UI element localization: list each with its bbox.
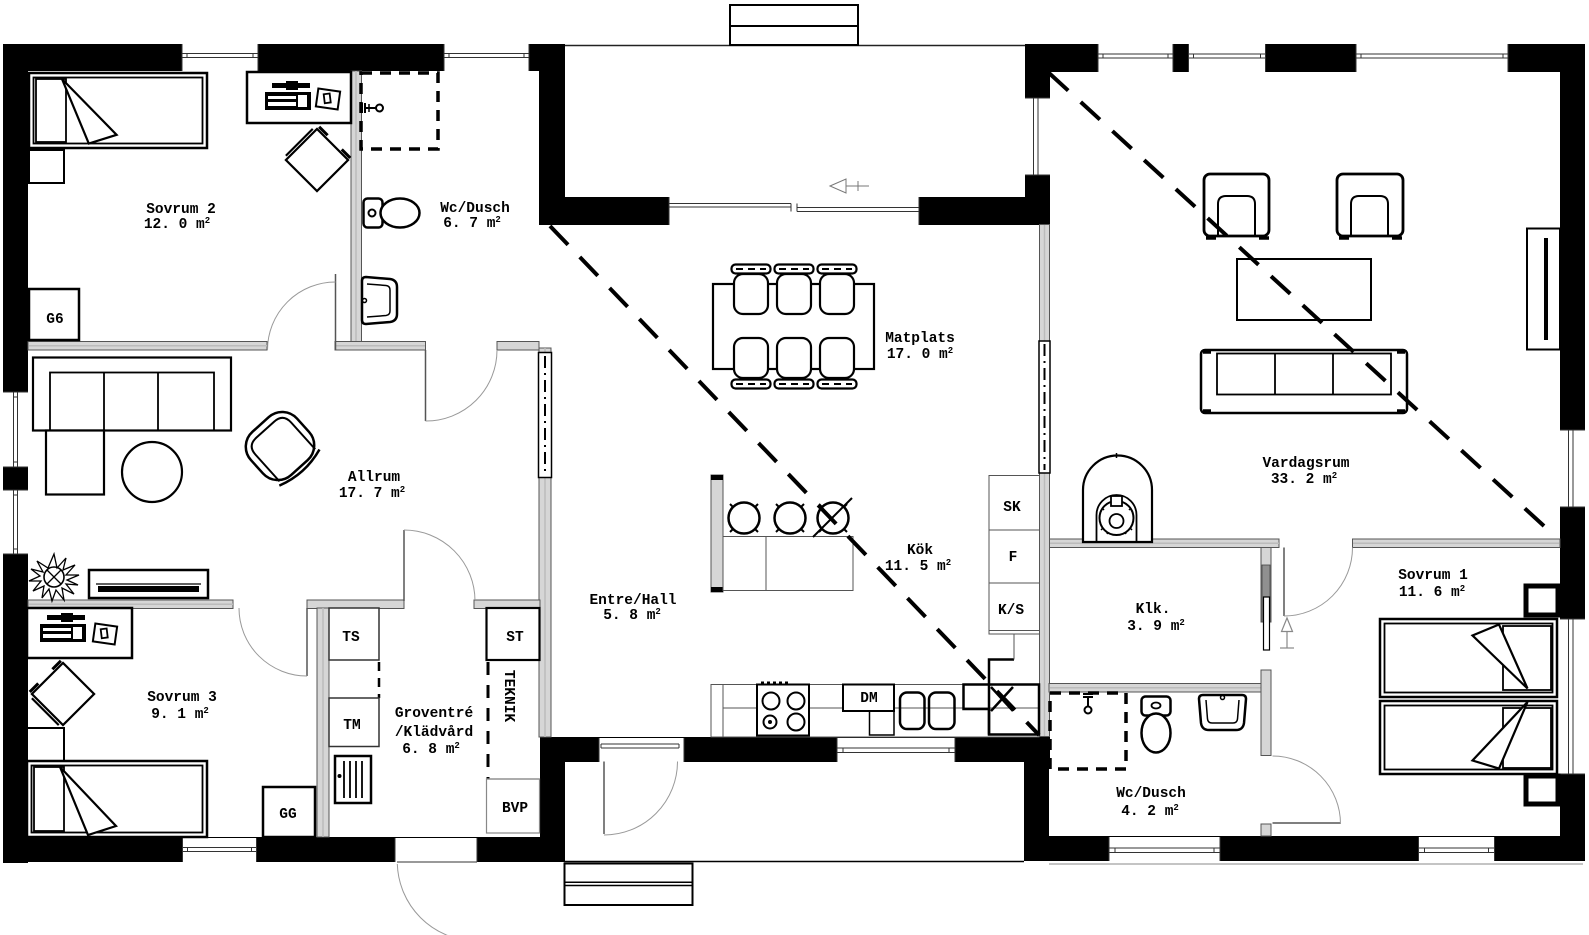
svg-text:6. 8 m2: 6. 8 m2 xyxy=(402,741,460,758)
svg-text:Entre/Hall: Entre/Hall xyxy=(589,593,676,609)
svg-text:TM: TM xyxy=(343,718,360,734)
svg-text:11. 5 m2: 11. 5 m2 xyxy=(885,558,951,575)
svg-text:/Klädvård: /Klädvård xyxy=(395,725,473,741)
svg-text:F: F xyxy=(1009,550,1018,566)
svg-text:Kök: Kök xyxy=(907,543,933,559)
svg-text:Vardagsrum: Vardagsrum xyxy=(1262,456,1349,472)
svg-text:Klk.: Klk. xyxy=(1136,602,1171,618)
svg-text:9. 1 m2: 9. 1 m2 xyxy=(151,706,209,723)
svg-text:5. 8 m2: 5. 8 m2 xyxy=(603,607,661,624)
svg-text:Allrum: Allrum xyxy=(348,470,401,486)
svg-text:BVP: BVP xyxy=(502,801,528,817)
svg-text:3. 9 m2: 3. 9 m2 xyxy=(1127,618,1185,635)
svg-text:SK: SK xyxy=(1003,500,1021,516)
svg-text:G6: G6 xyxy=(46,312,63,328)
svg-text:ST: ST xyxy=(506,630,524,646)
svg-text:TS: TS xyxy=(342,630,360,646)
svg-text:Sovrum 3: Sovrum 3 xyxy=(147,690,217,706)
svg-text:4. 2 m2: 4. 2 m2 xyxy=(1121,803,1179,820)
svg-text:11. 6 m2: 11. 6 m2 xyxy=(1399,584,1465,601)
svg-text:Groventré: Groventré xyxy=(395,706,473,722)
svg-text:GG: GG xyxy=(279,807,296,823)
svg-text:Sovrum 1: Sovrum 1 xyxy=(1398,568,1468,584)
svg-text:12. 0 m2: 12. 0 m2 xyxy=(144,216,210,233)
svg-text:33. 2 m2: 33. 2 m2 xyxy=(1271,471,1337,488)
svg-text:TEKNIK: TEKNIK xyxy=(500,670,516,723)
svg-text:Matplats: Matplats xyxy=(885,331,955,347)
svg-text:DM: DM xyxy=(860,691,877,707)
svg-text:K/S: K/S xyxy=(998,603,1024,619)
svg-text:6. 7 m2: 6. 7 m2 xyxy=(443,215,501,232)
svg-text:17. 7 m2: 17. 7 m2 xyxy=(339,485,405,502)
svg-text:17. 0 m2: 17. 0 m2 xyxy=(887,346,953,363)
svg-text:Wc/Dusch: Wc/Dusch xyxy=(1116,786,1186,802)
